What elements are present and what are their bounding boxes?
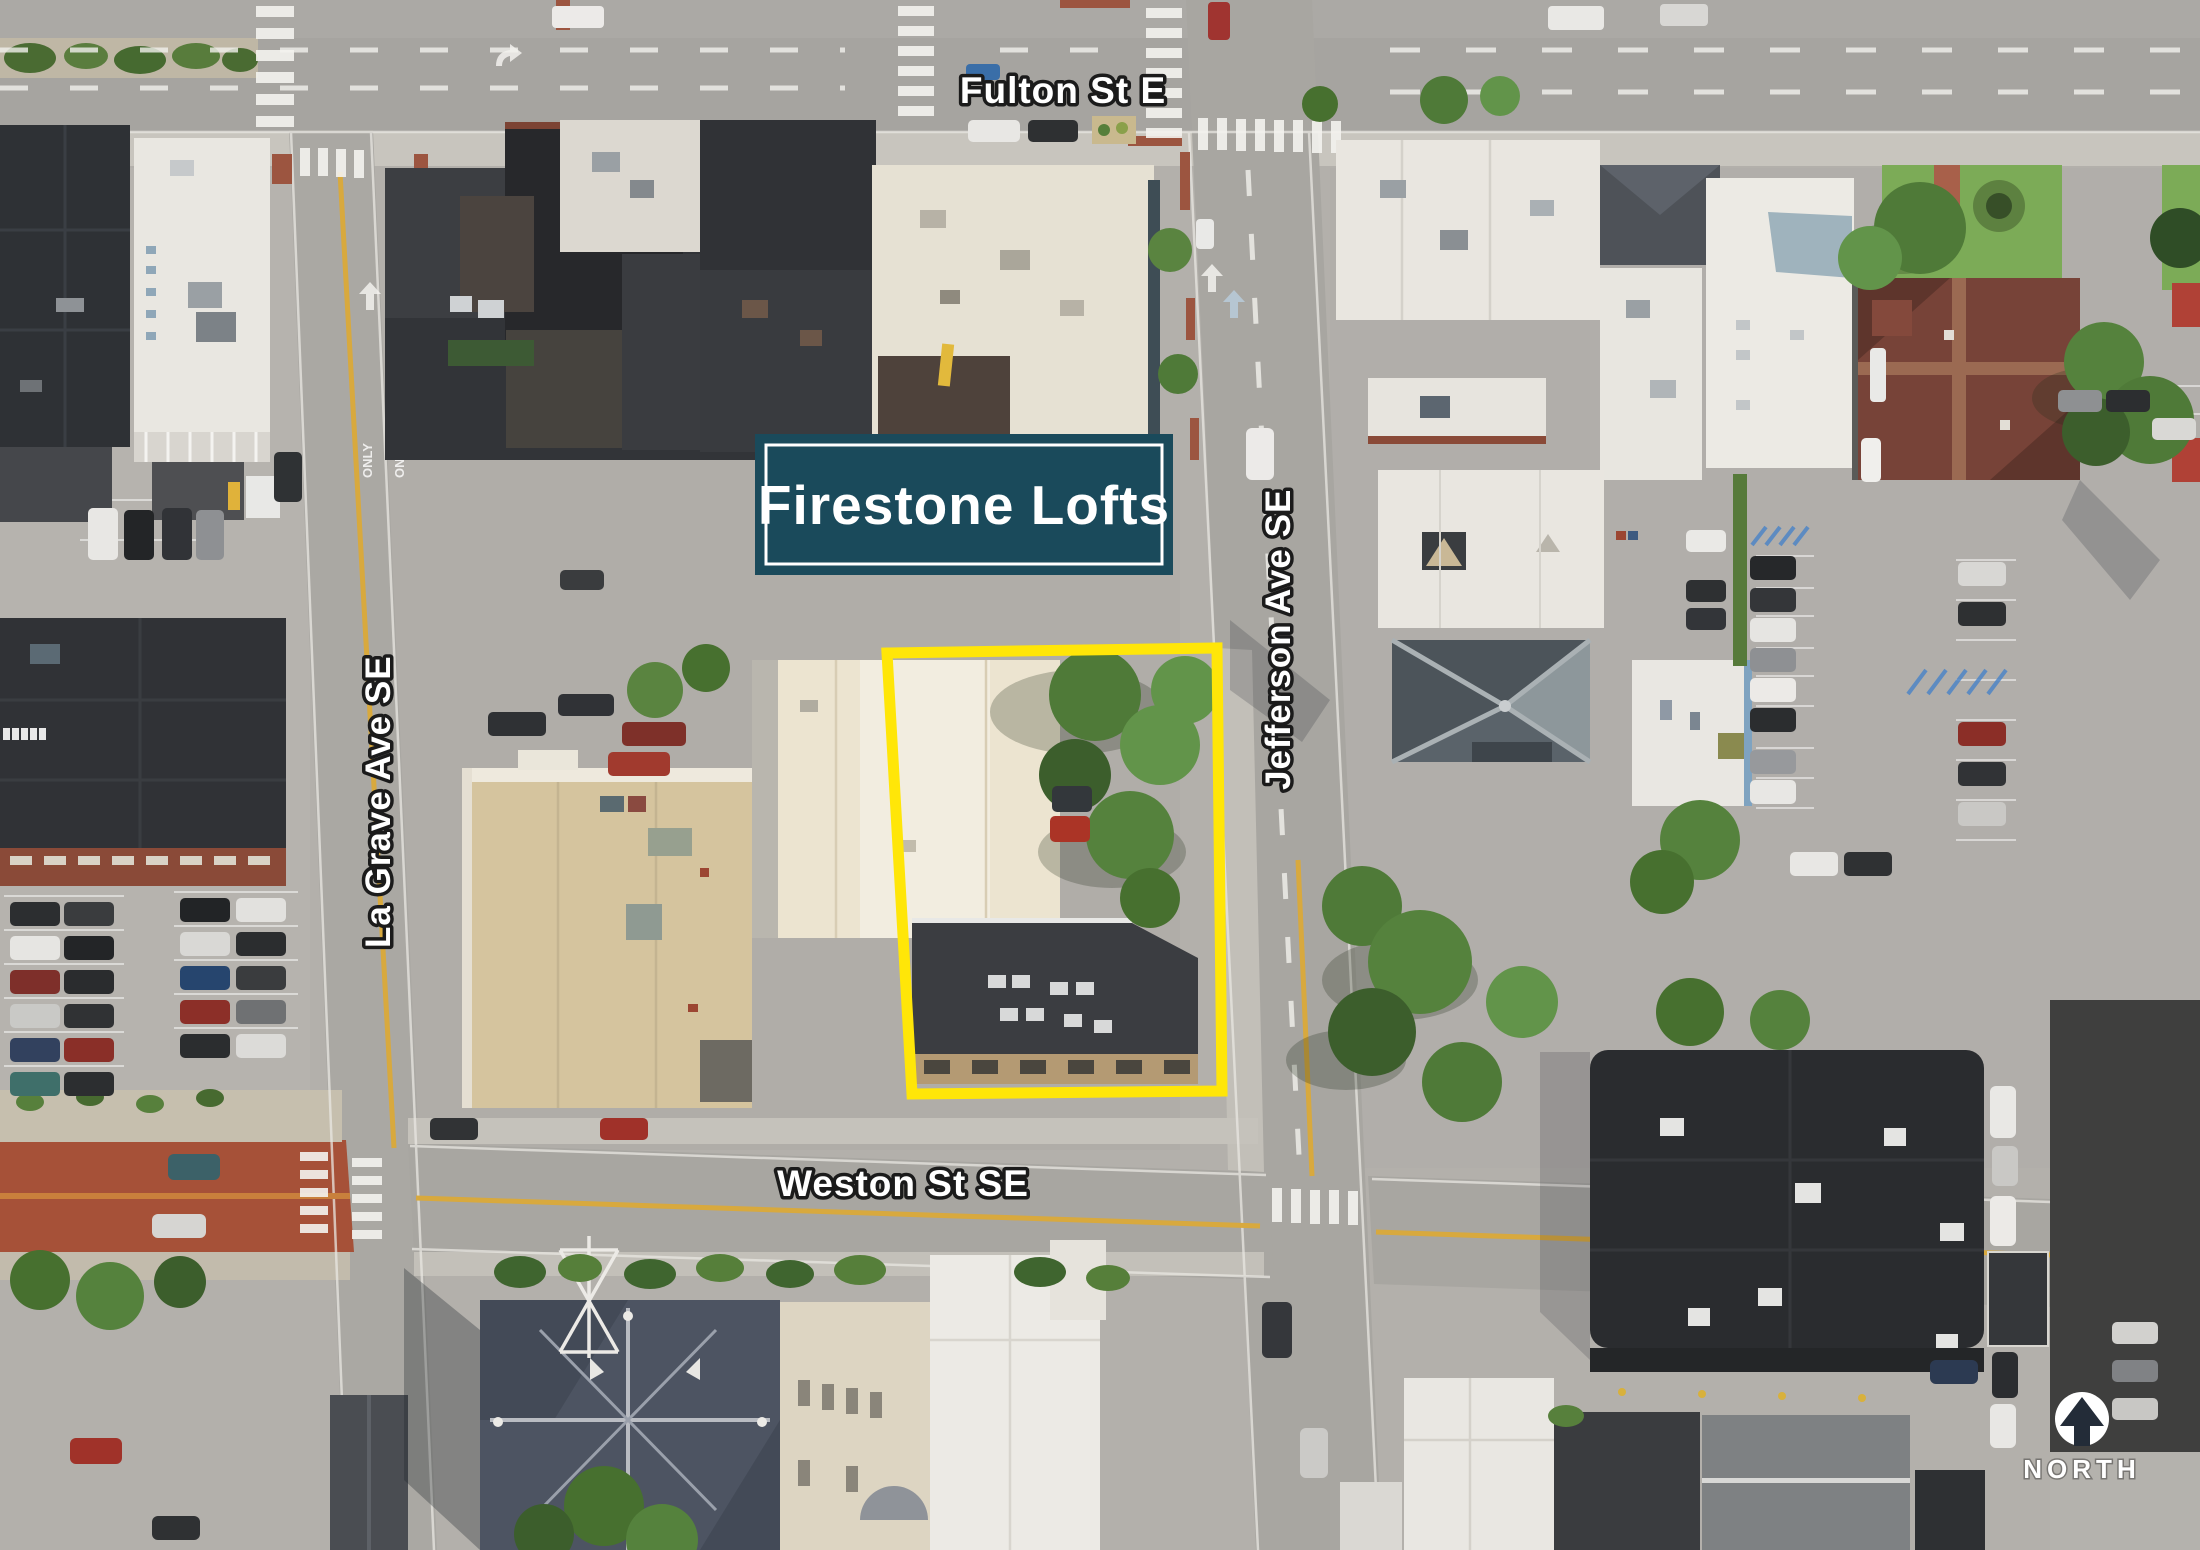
building-tan-center xyxy=(462,750,752,1108)
street-label-fulton: Fulton St E xyxy=(960,70,1166,111)
building-warehouse-west xyxy=(0,618,286,886)
building-dark-west xyxy=(0,125,130,522)
aerial-photo-canvas: ONLY ONLY xyxy=(0,0,2200,1550)
title-box: Firestone Lofts xyxy=(755,434,1173,575)
building-cluster-dark-center xyxy=(385,120,877,460)
building-dark-southeast xyxy=(1590,1050,2048,1402)
building-cream-north xyxy=(872,165,1160,474)
street-label-jefferson: Jefferson Ave SE xyxy=(1259,489,1298,790)
street-label-weston: Weston St SE xyxy=(777,1163,1029,1204)
pavement-only-marking: ONLY xyxy=(360,443,375,478)
building-white-northwest xyxy=(134,138,270,462)
street-label-lagrave: La Grave Ave SE xyxy=(359,655,398,948)
building-charcoal-hip-roof xyxy=(1392,640,1590,762)
building-white-complex-east xyxy=(1378,470,1638,628)
title-text: Firestone Lofts xyxy=(758,474,1170,536)
fulton-median xyxy=(0,38,258,78)
aerial-map: ONLY ONLY xyxy=(0,0,2200,1550)
north-label: NORTH xyxy=(2023,1454,2140,1484)
building-apartment-site xyxy=(912,918,1198,1084)
